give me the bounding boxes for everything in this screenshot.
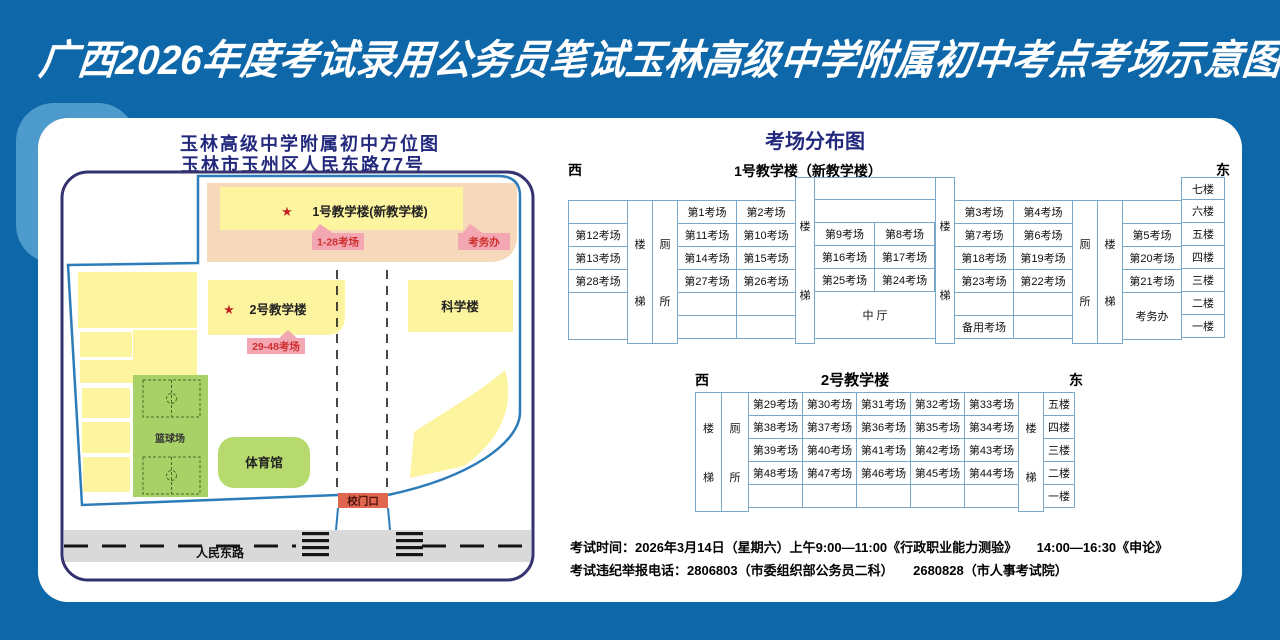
t2-col-2: 第30考场 第37考场 第40考场 第47考场	[802, 392, 857, 508]
floor-label: 五楼	[1181, 222, 1225, 246]
stairs-char: 楼	[1105, 236, 1116, 252]
room-cell: 第35考场	[910, 415, 965, 439]
room-cell: 第16考场	[814, 245, 875, 269]
stairs-cell: 楼 梯	[795, 177, 815, 344]
t1-col-d1: 第3考场 第7考场 第18考场 第23考场 备用考场	[954, 200, 1014, 339]
building2-rooms-badge-label: 29-48考场	[252, 340, 300, 353]
t1-col-b2: 第2考场 第10考场 第15考场 第26考场	[736, 200, 796, 339]
floor-label: 七楼	[1181, 177, 1225, 200]
room-cell: 第38考场	[748, 415, 803, 439]
room-cell: 第25考场	[814, 268, 875, 292]
building2-label: 2号教学楼	[250, 302, 307, 317]
room-cell: 第9考场	[814, 222, 875, 246]
toilet-char: 厕	[730, 420, 741, 436]
building2-star-icon: ★	[223, 302, 235, 317]
floor-label: 二楼	[1181, 291, 1225, 315]
room-cell: 第8考场	[874, 222, 935, 246]
room-cell: 第31考场	[856, 392, 911, 416]
room-cell: 第10考场	[736, 223, 796, 247]
stairs-char: 梯	[940, 287, 951, 303]
building1-table: 西 1号教学楼（新教学楼） 东 第12考场 第13考场 第28考场 楼 梯 厕 …	[568, 158, 1238, 348]
room-cell	[856, 484, 911, 508]
t1-toilet-east: 厕 所	[1072, 200, 1098, 344]
room-cell: 第6考场	[1013, 223, 1073, 247]
floor-label: 一楼	[1181, 314, 1225, 338]
road-label: 人民东路	[196, 545, 245, 560]
stairs-cell: 楼 梯	[627, 200, 653, 344]
room-cell: 第4考场	[1013, 200, 1073, 224]
room-cell: 第3考场	[954, 200, 1014, 224]
stairs-char: 楼	[703, 420, 714, 436]
room-cell: 第14考场	[677, 246, 737, 270]
t1-center-rooms: 第9考场 第16考场 第25考场 第8考场 第17考场 第24考场	[814, 222, 936, 292]
room-cell	[568, 292, 628, 340]
room-cell: 第46考场	[856, 461, 911, 485]
stairs-char: 楼	[800, 218, 811, 234]
t1-col-b1: 第1考场 第11考场 第14考场 第27考场	[677, 200, 737, 339]
stairs-cell: 楼 梯	[695, 392, 722, 512]
campus-map: 玉林高级中学附属初中方位图 玉林市玉州区人民东路77号 ★ 1号教学楼(新教学楼…	[40, 120, 540, 595]
stairs-cell: 楼 梯	[1018, 392, 1044, 512]
toilet-char: 所	[660, 293, 671, 309]
t1-col-east-rooms: 第5考场 第20考场 第21考场 考务办	[1122, 200, 1182, 340]
office-cell: 考务办	[1122, 292, 1182, 340]
distribution-title: 考场分布图	[715, 125, 915, 154]
building-block	[82, 388, 130, 418]
building1-star-icon: ★	[281, 204, 293, 219]
toilet-char: 所	[730, 469, 741, 485]
building-block	[83, 457, 130, 492]
room-cell: 第2考场	[736, 200, 796, 224]
t2-stairs-east: 楼 梯	[1018, 392, 1044, 512]
floor-label: 二楼	[1043, 461, 1075, 485]
stairs-char: 梯	[1026, 469, 1037, 485]
stairs-cell: 楼 梯	[1097, 200, 1123, 344]
stairs-char: 楼	[1026, 420, 1037, 436]
building1-label: 1号教学楼(新教学楼)	[312, 204, 427, 219]
toilet-char: 厕	[660, 236, 671, 252]
toilet-cell: 厕 所	[1072, 200, 1098, 344]
room-cell	[910, 484, 965, 508]
t2-toilet-west: 厕 所	[721, 392, 749, 512]
room-cell: 第15考场	[736, 246, 796, 270]
room-cell	[1013, 315, 1073, 339]
t2-stairs-west: 楼 梯	[695, 392, 722, 512]
floor-label: 六楼	[1181, 199, 1225, 223]
map-title-line1: 玉林高级中学附属初中方位图	[180, 133, 440, 154]
t2-col-4: 第32考场 第35考场 第42考场 第45考场	[910, 392, 965, 508]
building-block	[80, 360, 133, 383]
t2-col-5: 第33考场 第34考场 第43考场 第44考场	[964, 392, 1019, 508]
room-cell: 第26考场	[736, 269, 796, 293]
t1-col-d2: 第4考场 第6考场 第19考场 第22考场	[1013, 200, 1073, 339]
basketball-label: 篮球场	[154, 432, 185, 445]
room-cell: 第24考场	[874, 268, 935, 292]
toilet-cell: 厕 所	[652, 200, 678, 344]
room-cell: 第7考场	[954, 223, 1014, 247]
floor-label: 四楼	[1181, 245, 1225, 269]
floor-label: 三楼	[1181, 268, 1225, 292]
room-cell: 第29考场	[748, 392, 803, 416]
room-cell: 第45考场	[910, 461, 965, 485]
floor-label: 一楼	[1043, 484, 1075, 508]
room-cell: 第30考场	[802, 392, 857, 416]
room-cell: 第42考场	[910, 438, 965, 462]
room-cell: 第22考场	[1013, 269, 1073, 293]
room-cell: 第19考场	[1013, 246, 1073, 270]
stairs-char: 梯	[703, 469, 714, 485]
building-block	[82, 422, 130, 453]
t1-stairs-east: 楼 梯	[1097, 200, 1123, 344]
room-cell: 第13考场	[568, 246, 628, 270]
room-cell: 第37考场	[802, 415, 857, 439]
room-cell	[814, 199, 936, 223]
stairs-cell: 楼 梯	[935, 177, 955, 344]
toilet-char: 所	[1080, 293, 1091, 309]
room-cell: 第20考场	[1122, 246, 1182, 270]
room-cell	[736, 315, 796, 339]
room-cell	[1013, 292, 1073, 316]
room-cell: 第47考场	[802, 461, 857, 485]
stairs-char: 梯	[635, 293, 646, 309]
room-cell: 第39考场	[748, 438, 803, 462]
room-cell	[954, 292, 1014, 316]
west-label: 西	[695, 370, 709, 390]
t1-stairs-center-west: 楼 梯	[795, 177, 815, 344]
office-badge-label: 考务办	[468, 236, 500, 249]
floor-label: 三楼	[1043, 438, 1075, 462]
building2-table: 西 2号教学楼 东 楼 梯 厕 所 第29考场 第38考场 第39考场 第48考…	[695, 368, 1085, 514]
science-building-label: 科学楼	[441, 299, 479, 314]
toilet-char: 厕	[1080, 236, 1091, 252]
building2-grid: 楼 梯 厕 所 第29考场 第38考场 第39考场 第48考场 第30考场 第3…	[695, 392, 1075, 512]
room-cell	[748, 484, 803, 508]
room-cell: 第33考场	[964, 392, 1019, 416]
building-block	[80, 332, 132, 357]
report-phone-info: 考试违纪举报电话：2806803（市委组织部公务员二科） 2680828（市人事…	[570, 560, 1068, 579]
room-cell: 第40考场	[802, 438, 857, 462]
room-cell: 第32考场	[910, 392, 965, 416]
floor-label: 四楼	[1043, 415, 1075, 439]
t1-stairs-west: 楼 梯	[627, 200, 653, 344]
building-block	[133, 330, 197, 375]
stairs-char: 梯	[800, 287, 811, 303]
room-cell	[677, 315, 737, 339]
hall-cell: 中 厅	[814, 291, 936, 339]
room-cell: 第17考场	[874, 245, 935, 269]
building1-grid: 第12考场 第13考场 第28考场 楼 梯 厕 所 第1考场 第11考场 第14…	[568, 177, 1225, 344]
banner-title: 广西2026年度考试录用公务员笔试玉林高级中学附属初中考点考场示意图	[36, 26, 1280, 86]
room-cell: 第23考场	[954, 269, 1014, 293]
room-cell: 第28考场	[568, 269, 628, 293]
room-cell	[677, 292, 737, 316]
room-cell	[802, 484, 857, 508]
exam-time-info: 考试时间：2026年3月14日（星期六）上午9:00—11:00《行政职业能力测…	[570, 537, 1168, 556]
t1-col-west-rooms: 第12考场 第13考场 第28考场	[568, 200, 628, 340]
room-cell: 第41考场	[856, 438, 911, 462]
room-cell: 第18考场	[954, 246, 1014, 270]
room-cell: 第44考场	[964, 461, 1019, 485]
stairs-char: 梯	[1105, 293, 1116, 309]
room-cell: 第34考场	[964, 415, 1019, 439]
banner: 广西2026年度考试录用公务员笔试玉林高级中学附属初中考点考场示意图	[0, 26, 1280, 86]
room-cell	[1122, 200, 1182, 224]
t1-floors: 七楼 六楼 五楼 四楼 三楼 二楼 一楼	[1181, 177, 1225, 338]
room-cell: 第36考场	[856, 415, 911, 439]
room-cell: 第21考场	[1122, 269, 1182, 293]
room-cell: 第12考场	[568, 223, 628, 247]
room-cell: 备用考场	[954, 315, 1014, 339]
room-cell	[568, 200, 628, 224]
room-cell	[736, 292, 796, 316]
gate-label: 校门口	[347, 495, 379, 508]
east-label: 东	[1069, 370, 1083, 390]
t2-floors: 五楼 四楼 三楼 二楼 一楼	[1043, 392, 1075, 508]
toilet-cell: 厕 所	[721, 392, 749, 512]
stairs-char: 楼	[635, 236, 646, 252]
gym-label: 体育馆	[245, 455, 283, 470]
t1-toilet-west: 厕 所	[652, 200, 678, 344]
building1-rooms-badge-label: 1-28考场	[317, 236, 360, 249]
stairs-char: 楼	[940, 218, 951, 234]
room-cell	[964, 484, 1019, 508]
room-cell: 第43考场	[964, 438, 1019, 462]
building-block	[78, 272, 197, 328]
building2-table-title: 2号教学楼	[755, 369, 955, 390]
tower-top-cell	[814, 177, 936, 200]
room-cell: 第5考场	[1122, 223, 1182, 247]
t1-center-section: 第9考场 第16考场 第25考场 第8考场 第17考场 第24考场 中 厅	[814, 177, 936, 339]
t2-col-3: 第31考场 第36考场 第41考场 第46考场	[856, 392, 911, 508]
room-cell: 第48考场	[748, 461, 803, 485]
t2-col-1: 第29考场 第38考场 第39考场 第48考场	[748, 392, 803, 508]
room-cell: 第11考场	[677, 223, 737, 247]
floor-label: 五楼	[1043, 392, 1075, 416]
room-cell: 第1考场	[677, 200, 737, 224]
room-cell: 第27考场	[677, 269, 737, 293]
t1-stairs-center-east: 楼 梯	[935, 177, 955, 344]
